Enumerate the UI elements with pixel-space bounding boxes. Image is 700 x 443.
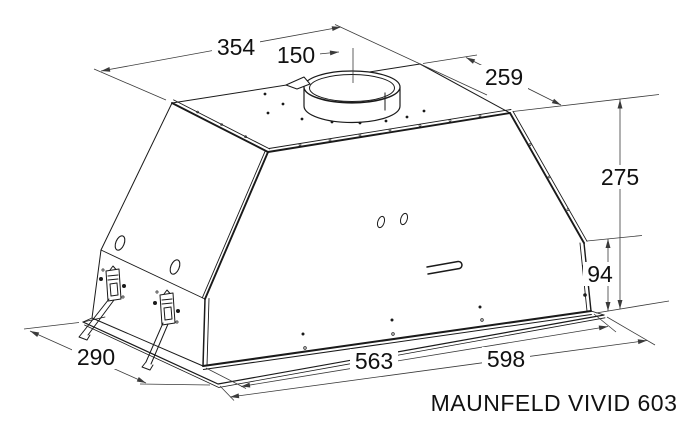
ext-line [594,314,616,332]
mounting-bracket-2 [142,290,175,370]
model-label: MAUNFELD VIVID 603 [431,390,678,416]
technical-drawing: 354 150 259 275 94 563 598 290 MAUNFELD … [0,0,700,443]
dim-label-body-width: 563 [355,348,393,374]
ext-line [206,368,246,389]
ext-line [513,95,659,112]
ext-line [24,323,79,330]
front-face-details [376,212,462,274]
dim-label-top-depth: 259 [485,64,523,90]
dim-label-total-width: 598 [487,346,525,372]
dim-label-body-height: 94 [587,261,613,287]
dim-label-bottom-depth: 290 [77,344,115,370]
mounting-bracket-1 [79,266,121,340]
dim-label-duct-diameter: 150 [277,42,315,68]
ext-line [220,386,234,401]
dim-label-top-width: 354 [217,34,256,60]
keyhole-slot [168,258,181,275]
ext-line [94,69,166,100]
dim-line-total-width [230,341,647,398]
leader-line-duct [319,52,339,54]
keyhole-slot [113,234,126,251]
ext-line [587,236,642,242]
duct-collar [286,71,400,123]
handle-slot [427,261,462,274]
drawing-page: 354 150 259 275 94 563 598 290 MAUNFELD … [0,0,700,443]
ext-line [140,384,210,385]
ext-line [596,301,669,313]
dim-label-total-height: 275 [601,164,639,190]
